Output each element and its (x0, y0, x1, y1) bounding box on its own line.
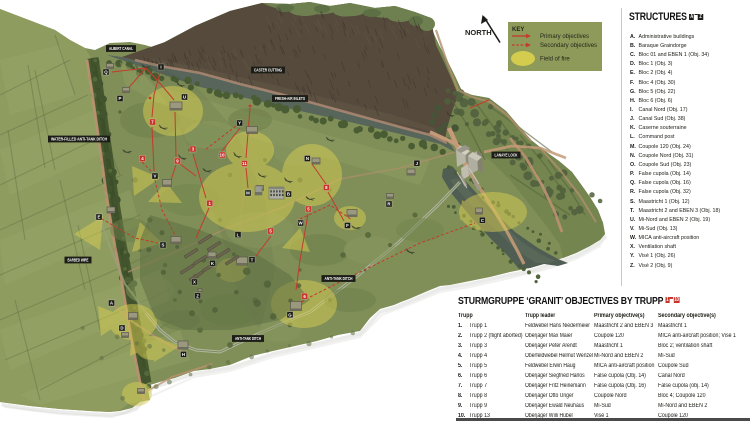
svg-text:M: M (246, 191, 250, 196)
svg-text:V: V (154, 174, 157, 179)
svg-text:ANTI-TANK DITCH: ANTI-TANK DITCH (235, 336, 261, 341)
svg-text:11: 11 (242, 161, 247, 166)
svg-text:L: L (237, 232, 240, 237)
svg-text:F: F (346, 223, 349, 228)
svg-text:KEY: KEY (512, 27, 524, 33)
svg-text:ALBERT CANAL: ALBERT CANAL (109, 46, 133, 51)
svg-text:E: E (98, 215, 101, 220)
svg-text:CASTER CUTTING: CASTER CUTTING (254, 68, 282, 73)
svg-text:FRESH-AIR INLETS: FRESH-AIR INLETS (275, 96, 305, 101)
svg-text:10: 10 (220, 153, 225, 158)
svg-text:Field of fire: Field of fire (540, 57, 570, 63)
svg-text:D: D (120, 326, 123, 331)
svg-text:Secondary objectives: Secondary objectives (540, 43, 597, 49)
svg-text:N: N (306, 156, 309, 161)
svg-text:NORTH: NORTH (465, 28, 492, 37)
svg-text:Z: Z (196, 294, 199, 299)
svg-text:Q: Q (104, 70, 108, 75)
svg-text:G: G (288, 313, 292, 318)
svg-text:ANTI-TANK DITCH: ANTI-TANK DITCH (325, 276, 353, 281)
svg-text:X: X (193, 280, 196, 285)
svg-text:T: T (251, 258, 254, 263)
svg-text:I: I (160, 65, 161, 70)
svg-text:Y: Y (238, 121, 241, 126)
svg-text:LANAYE LOCK: LANAYE LOCK (495, 153, 518, 158)
svg-text:U: U (183, 95, 186, 100)
svg-text:WATER-FILLED ANTI-TANK DITCH: WATER-FILLED ANTI-TANK DITCH (51, 137, 107, 142)
svg-text:BARBED WIRE: BARBED WIRE (68, 258, 89, 263)
svg-text:Primary objectives: Primary objectives (540, 34, 589, 40)
svg-text:H: H (182, 352, 185, 357)
svg-text:S: S (162, 243, 165, 248)
svg-text:P: P (119, 96, 122, 101)
svg-text:B: B (287, 192, 290, 197)
